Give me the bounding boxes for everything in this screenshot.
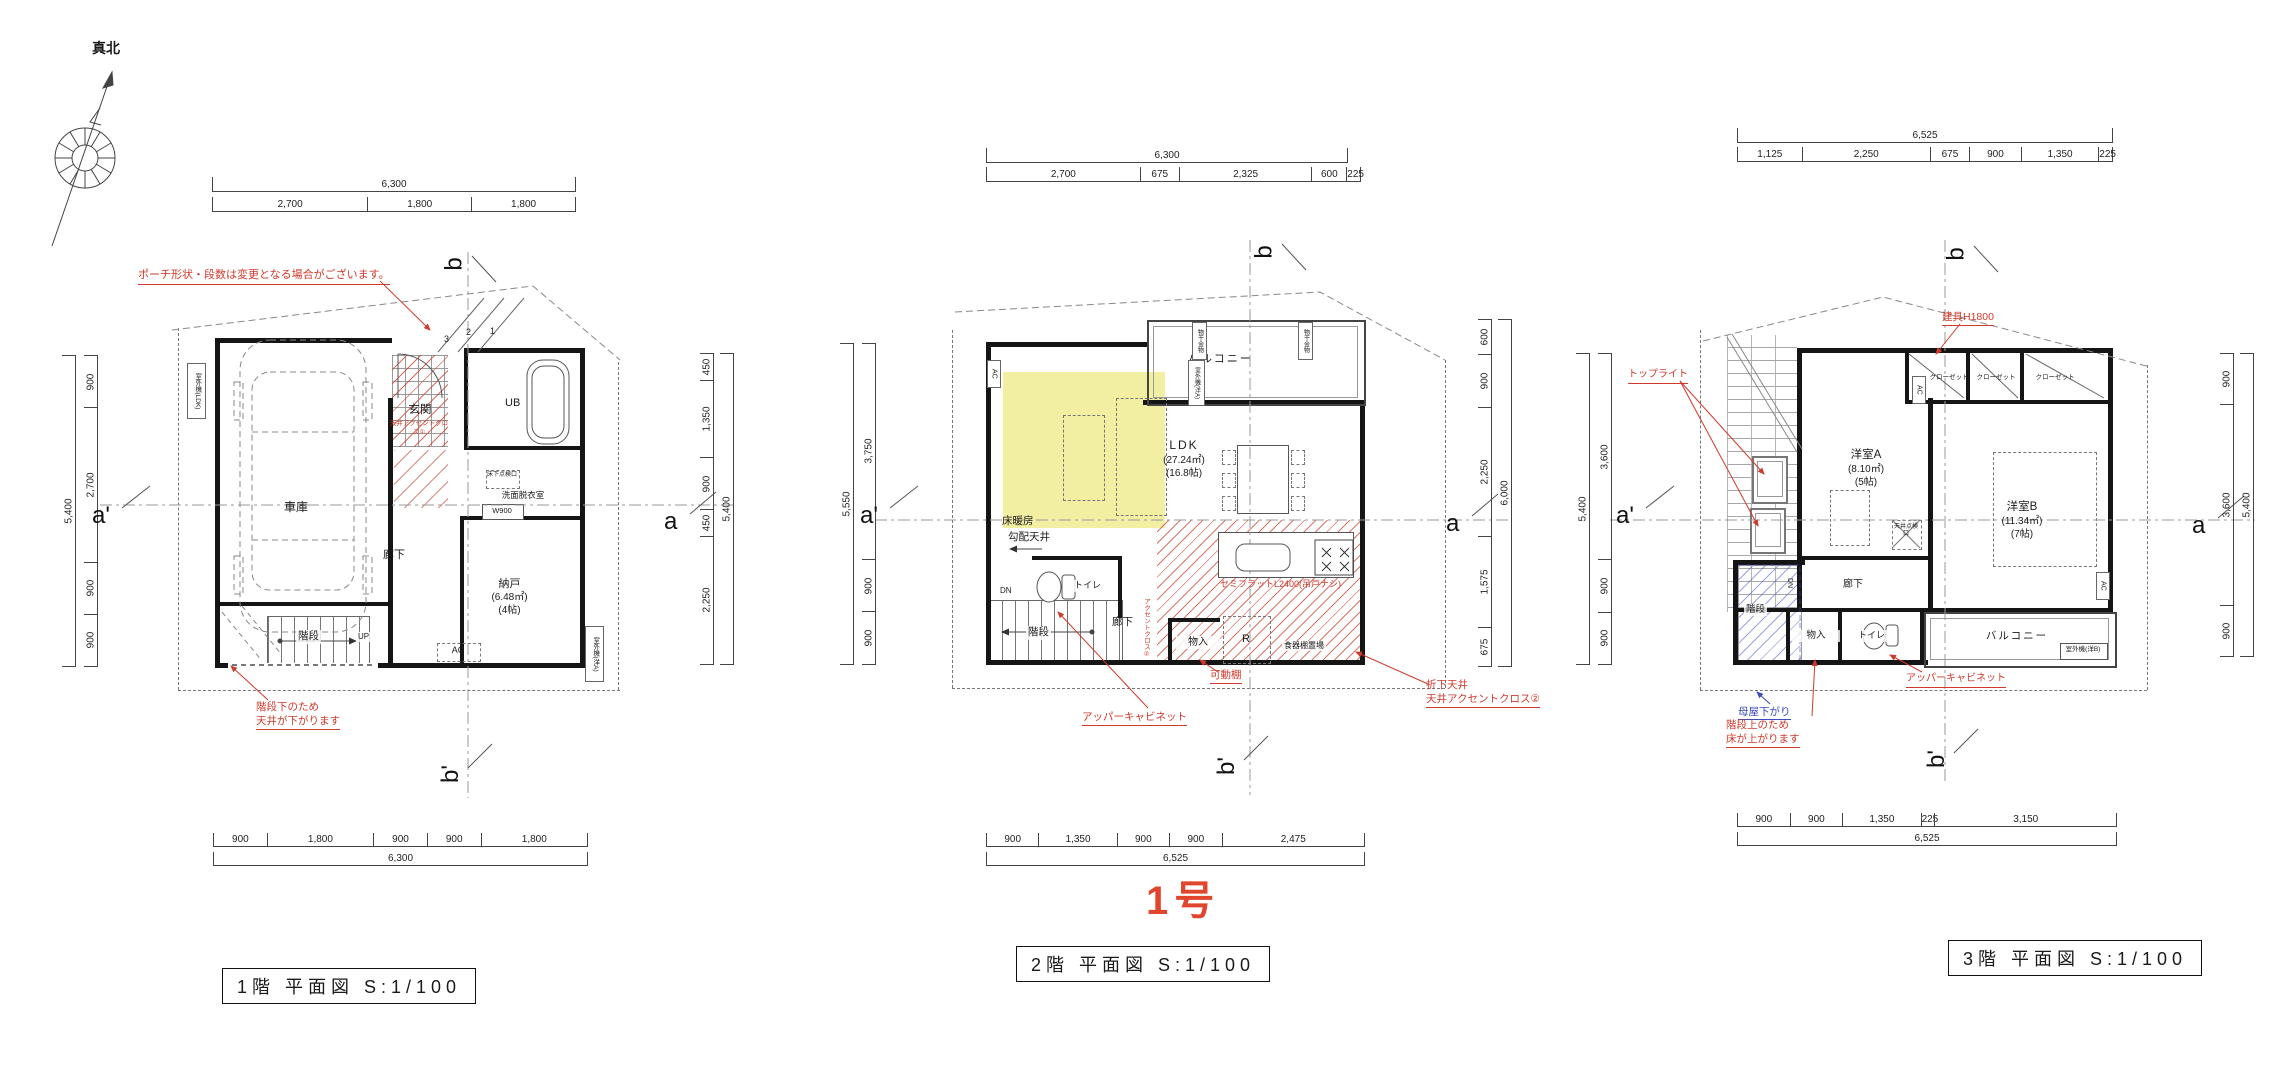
room-b: 洋室B (11.34㎡) (7帖) [1982, 500, 2062, 541]
dim-top-segments-1f: 2,700 1,800 1,800 [212, 197, 576, 212]
wall [1905, 400, 2113, 404]
wall [464, 446, 585, 450]
note-floor-up: 階段上のため 床が上がります [1726, 718, 1800, 748]
wall [1733, 660, 1928, 665]
site-boundary [178, 690, 620, 691]
stairs-label-1f: 階段 [296, 630, 321, 644]
room-a: 洋室A (8.10㎡) (5帖) [1830, 448, 1902, 489]
dim-top-segments-3f: 1,125 2,250 675 900 1,350 225 [1737, 147, 2113, 162]
room-toilet-2f: トイレ [1072, 580, 1103, 592]
wall [1786, 608, 1790, 665]
ceiling-hatch-label: 天井点検口 [1893, 524, 1919, 538]
dim-top-total-1f: 6,300 [212, 177, 576, 192]
dim-bottom-total-2f: 6,525 [986, 852, 1365, 866]
ac-label-2f: AC [987, 360, 1001, 388]
wall [986, 660, 1365, 665]
wall [1733, 560, 1738, 665]
sloped-ceiling-label: 勾配天井 [1008, 531, 1050, 545]
note-folded-ceiling: 折下天井 天井アクセントクロス② [1426, 678, 1540, 708]
ac-label-3f-a: AC [1912, 376, 1926, 404]
ac-label-1f: AC [437, 645, 479, 657]
section-marker-b-1f: b [441, 257, 469, 270]
title-1f: 1階 平面図 S:1/100 [222, 968, 476, 1004]
wall [388, 398, 393, 668]
dim-left-segments-3f: 3,600 900 900 [1598, 353, 1612, 665]
bathtub-icon [527, 360, 569, 444]
dim-right-total-1f: 5,400 [720, 353, 734, 665]
dim-right-segments-3f: 900 3,600 900 [2220, 353, 2234, 657]
car-icon [234, 340, 372, 632]
room-storage: 納戸 (6.48㎡) (4帖) [452, 577, 567, 617]
note-under-stairs: 階段下のため 天井が下がります [256, 700, 340, 730]
section-marker-b2-2f: b' [1213, 757, 1241, 775]
title-3f: 3階 平面図 S:1/100 [1948, 940, 2202, 976]
kitchen-island [1063, 415, 1105, 501]
wall [1797, 556, 1933, 560]
dim-top-segments-2f: 2,700 675 2,325 600 225 [986, 167, 1361, 182]
wall [1168, 618, 1220, 622]
wall [215, 338, 220, 668]
wall [2020, 348, 2024, 404]
section-marker-a2-1f: a' [92, 502, 110, 530]
dim-bottom-segments-3f: 900 900 1,350 225 3,150 [1737, 813, 2117, 827]
site-boundary [1700, 330, 1701, 690]
dim-bottom-total-3f: 6,525 [1737, 832, 2117, 846]
step-number: 2 [466, 327, 471, 339]
section-marker-b2-3f: b' [1923, 750, 1951, 768]
room-garage: 車庫 [266, 500, 326, 516]
wall [1032, 556, 1122, 560]
section-marker-b-2f: b [1251, 245, 1279, 258]
site-boundary [178, 328, 179, 690]
dim-left-total-1f: 5,400 [62, 355, 76, 667]
ac-label-3f-b: AC [2096, 572, 2110, 600]
dim-top-total-2f: 6,300 [986, 148, 1348, 163]
fridge-label: R [1223, 632, 1269, 646]
room-balcony-3f: バルコニー [1982, 630, 2052, 644]
room-washroom: 洗面脱衣室 [486, 490, 560, 501]
compass-icon [52, 72, 115, 246]
room-monoire-2f: 物入 [1176, 636, 1220, 649]
wall [986, 342, 991, 665]
wall [1118, 556, 1122, 618]
purlin-leader [1757, 692, 1770, 704]
toilet-icon-2f [1037, 572, 1075, 602]
wall [580, 348, 585, 668]
dim-bottom-segments-2f: 900 1,350 900 900 2,475 [986, 833, 1365, 847]
room-corridor-3f: 廊下 [1843, 578, 1863, 591]
section-marker-a-1f: a [664, 508, 677, 536]
wall [1733, 560, 1805, 565]
note-movable-shelf: 可動棚 [1210, 668, 1242, 684]
closet-label: クローゼット [2030, 374, 2080, 382]
w900-label: W900 [482, 506, 522, 516]
outdoor-unit-ldk: 室外機(LDK) [187, 363, 206, 419]
wall [1168, 618, 1172, 664]
dim-left-total-2f: 5,550 [840, 343, 854, 665]
closet-label: クローゼット [1974, 374, 2018, 382]
outdoor-unit-a-2f: 室外機(洋A) [1188, 360, 1205, 406]
note-ceiling-accent: 天井アクセントクロス① [388, 420, 450, 438]
site-boundary [1700, 690, 2147, 691]
step-number: 1 [490, 326, 495, 338]
chair [1291, 450, 1305, 465]
section-marker-b-3f: b [1943, 247, 1971, 260]
wall [1360, 400, 1365, 665]
chair [1222, 473, 1236, 488]
room-entrance: 玄関 [396, 403, 444, 418]
skylight [1750, 508, 1786, 554]
floor-heating-label: 床暖房 [1002, 515, 1034, 529]
chair [1222, 450, 1236, 465]
chair [1291, 473, 1305, 488]
room-monoire-3f: 物入 [1792, 630, 1840, 642]
porch-steps [438, 298, 524, 352]
site-boundary [618, 362, 619, 690]
dim-bottom-segments-1f: 900 1,800 900 900 1,800 [213, 833, 588, 847]
cupboard-label: 食器棚置場 [1282, 641, 1326, 651]
outdoor-unit-b-label: 室外機(洋B) [2060, 646, 2106, 654]
kitchen-counter [1218, 532, 1354, 578]
stairs-2f [988, 600, 1123, 664]
dim-left-total-3f: 5,400 [1576, 353, 1590, 665]
section-marker-a2-3f: a' [1616, 502, 1634, 530]
wall [1797, 348, 2113, 353]
stairs-label-3f: 階段 [1744, 604, 1767, 616]
wall [1797, 348, 1802, 612]
garage-door-gap [228, 663, 378, 668]
title-2f: 2階 平面図 S:1/100 [1016, 946, 1270, 982]
drawing-linework [0, 0, 2288, 1092]
stairs-label-2f: 階段 [1026, 626, 1051, 640]
site-boundary [952, 688, 1445, 689]
site-boundary [952, 330, 953, 688]
unit-number: 1号 [1146, 868, 1220, 926]
desk [1830, 490, 1870, 546]
dim-bottom-total-1f: 6,300 [213, 852, 588, 866]
note-door-h1800: 建具H1800 [1942, 310, 1994, 326]
section-marker-a2-2f: a' [860, 502, 878, 530]
room-corridor-2f: 廊下 [1112, 616, 1133, 630]
note-toplight: トップライト [1628, 368, 1688, 384]
note-upper-cabinet-2f: アッパーキャビネット [1082, 710, 1187, 726]
wall [215, 338, 392, 343]
dim-top-total-3f: 6,525 [1737, 128, 2113, 143]
room-corridor: 廊下 [372, 548, 416, 562]
stairs-up-label: UP [356, 632, 371, 642]
section-marker-a-3f: a [2192, 512, 2205, 540]
site-boundary [2147, 365, 2148, 690]
wall [464, 348, 468, 448]
outdoor-unit-a-1f: 室外機(洋A) [585, 626, 604, 682]
note-porch: ポーチ形状・段数は変更となる場合がございます。 [138, 268, 390, 285]
accent-wall-label: アクセントクロス② [1142, 598, 1149, 658]
laundry-hw: 物干金物 [1192, 322, 1207, 360]
entrance-hall-hatch [394, 450, 448, 508]
dim-right-total-3f: 5,400 [2240, 353, 2254, 657]
room-toilet-3f: トイレ [1856, 630, 1887, 642]
wall [215, 602, 393, 606]
wall [986, 342, 1147, 347]
wall [466, 348, 585, 353]
dim-right-segments-2f: 600 900 2,250 1,575 675 [1478, 319, 1492, 667]
floor-hatch-label: 床下点検口 [484, 472, 520, 480]
stairs-dn-2f: DN [1000, 586, 1012, 596]
wall [1905, 348, 1909, 404]
north-label: 真北 [92, 38, 120, 58]
closet-label: クローゼット [1928, 374, 1970, 382]
room-bath: UB [505, 396, 520, 410]
section-marker-a-2f: a [1446, 510, 1459, 538]
dining-table [1237, 445, 1289, 514]
wall [1928, 398, 1933, 612]
section-marker-b2-1f: b' [437, 765, 465, 783]
chair [1222, 496, 1236, 511]
floorplan-sheet: 真北 6,300 2,700 1,800 1,800 900 1,800 900… [0, 0, 2288, 1092]
room-ldk: LDK (27.24㎡) (16.8帖) [1148, 438, 1220, 480]
dim-right-total-2f: 6,000 [1498, 319, 1512, 667]
laundry-hw: 物干金物 [1298, 322, 1313, 360]
balcony-inner-line [1153, 326, 1358, 398]
chair [1291, 496, 1305, 511]
step-number: 3 [444, 334, 449, 346]
skylight [1752, 456, 1788, 504]
note-kitchen: セミフラットL2400(吊戸ナシ) [1220, 578, 1341, 590]
stairs-dn-3f: DN [1786, 578, 1793, 588]
note-upper-cabinet-3f: アッパーキャビネット [1906, 672, 2006, 688]
dim-right-segments-1f: 450 1,350 900 450 2,250 [700, 353, 714, 665]
